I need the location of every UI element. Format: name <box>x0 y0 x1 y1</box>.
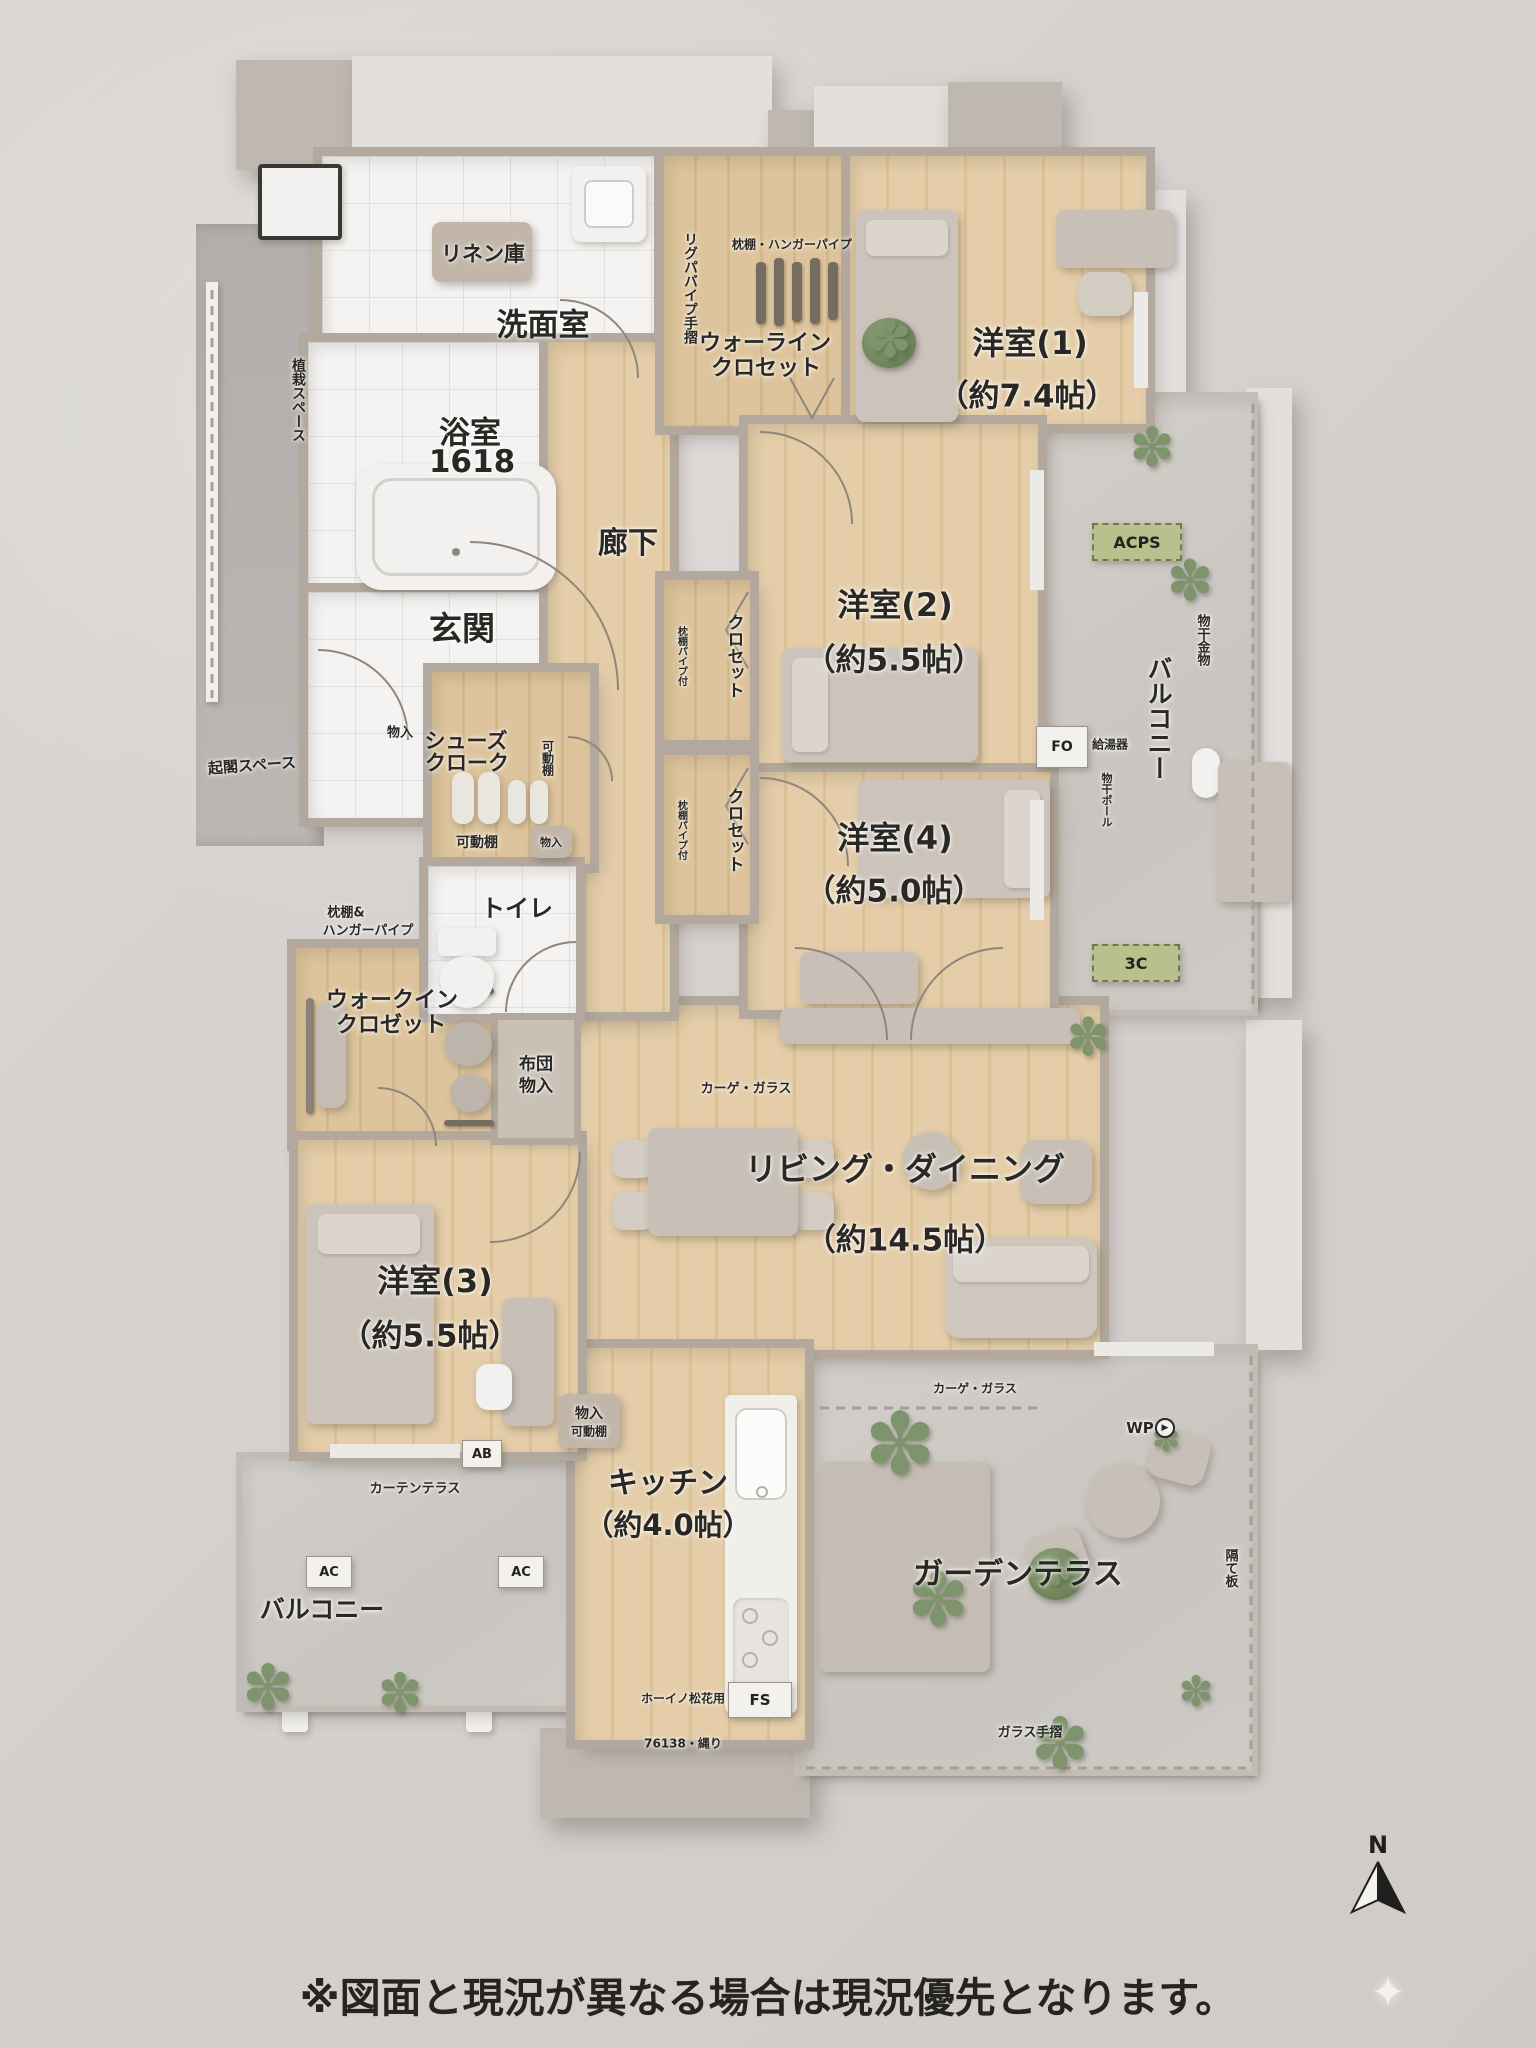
plant-icon: ✽ <box>1129 421 1174 475</box>
plant-icon: ✽ <box>868 314 912 366</box>
label-linen: リネン庫 <box>441 238 525 268</box>
plant-icon: ✽ <box>377 1667 422 1721</box>
label-closet-b-note: 枕棚パイプ付 <box>674 800 689 860</box>
label-pillar-note: リグパバイプ手摺 <box>680 232 700 344</box>
label-kitchen-area: （約4.0帖） <box>584 1502 751 1544</box>
label-kitchen-store-2: 可動棚 <box>571 1423 607 1440</box>
badge-fs: FS <box>728 1682 792 1718</box>
label-glass-rail: ガラス手摺 <box>998 1722 1063 1741</box>
badge-ab: AB <box>462 1440 502 1468</box>
plant-icon: ✽ <box>1167 554 1214 610</box>
label-wic-2: クロゼット <box>336 1007 446 1039</box>
plant-icon: ✽ <box>864 1402 936 1488</box>
label-dim-note: 76138・縄り <box>644 1735 722 1752</box>
label-bedroom2-area: （約5.5帖） <box>805 635 984 680</box>
label-glass-top: カーゲ・ガラス <box>701 1078 792 1097</box>
label-bedroom3: 洋室(3) <box>377 1256 493 1302</box>
label-living: リビング・ダイニング <box>745 1144 1065 1190</box>
label-wic-note2: ハンガーパイプ <box>323 920 414 939</box>
label-balcony-left: バルコニー <box>260 1590 385 1626</box>
badge-ac-left: AC <box>306 1556 352 1588</box>
label-bedroom2: 洋室(2) <box>837 580 953 626</box>
label-entry-note: 物入 <box>387 722 413 741</box>
plan-linework: N <box>0 0 1536 2048</box>
label-bedroom3-area: （約5.5帖） <box>341 1311 520 1356</box>
label-washroom: 洗面室 <box>497 300 590 345</box>
label-kitchen-store-1: 物入 <box>575 1403 603 1423</box>
label-hoshi: 物干金物 <box>1193 614 1212 666</box>
badge-fo: FO <box>1036 726 1088 768</box>
label-bath-size: 1618 <box>429 444 515 480</box>
plant-icon: ✽ <box>1178 1671 1213 1713</box>
label-pole: 物干ポール <box>1098 773 1114 828</box>
badge-wp: WP <box>1126 1419 1154 1437</box>
label-curtain: カーテンテラス <box>370 1478 461 1497</box>
badge-3c: 3C <box>1092 944 1180 982</box>
label-closet-a-note: 枕棚パイプ付 <box>674 626 689 686</box>
label-garden: ガーデンテラス <box>913 1549 1122 1593</box>
svg-text:N: N <box>1368 1831 1388 1859</box>
label-living-area: （約14.5帖） <box>805 1215 1006 1260</box>
label-shoes-box: 物入 <box>540 834 562 850</box>
label-corridor: 廊下 <box>598 518 658 562</box>
label-closet-b: クロセット <box>722 788 747 873</box>
label-bedroom4: 洋室(4) <box>837 813 953 859</box>
plant-icon: ✽ <box>1031 1709 1090 1779</box>
badge-ac-right: AC <box>498 1556 544 1588</box>
badge-acps: ACPS <box>1092 523 1182 561</box>
label-site-top: 植栽スペース <box>288 358 308 442</box>
plant-icon: ✽ <box>1066 1012 1110 1064</box>
label-bedroom4-area: （約5.0帖） <box>805 866 984 911</box>
label-hallcloset-note: 枕棚・ハンガーパイプ <box>732 236 852 253</box>
label-shoes-2: クローク <box>425 747 509 777</box>
label-glass-top2: カーゲ・ガラス <box>933 1380 1017 1397</box>
wp-outlet-icon: ▶ <box>1155 1418 1175 1438</box>
label-bedroom1-area: （約7.4帖） <box>938 371 1117 416</box>
label-kitchen-note: ホーイノ松花用 <box>641 1690 725 1707</box>
plant-icon: ✽ <box>242 1657 294 1719</box>
label-balcony-right: バルコニー <box>1140 656 1176 781</box>
label-kyutoki: 給湯器 <box>1092 736 1128 753</box>
label-shoes-shelf: 可動棚 <box>456 832 498 852</box>
label-hallcloset-2: クロセット <box>711 350 821 382</box>
label-closet-a: クロセット <box>722 614 747 699</box>
label-divider: 隔て板 <box>1221 1549 1240 1588</box>
label-futon-2: 物入 <box>519 1072 553 1097</box>
label-bedroom1: 洋室(1) <box>972 318 1088 364</box>
label-entrance: 玄関 <box>429 602 495 650</box>
compass-icon: N <box>1352 1831 1404 1912</box>
label-kitchen: キッチン <box>608 1458 728 1502</box>
label-shoes-side: 可動棚 <box>540 740 557 776</box>
label-wic-note1: 枕棚& <box>327 902 364 921</box>
label-toilet: トイレ <box>481 889 553 924</box>
disclaimer-text: ※図面と現況が異なる場合は現況優先となります。 <box>0 1964 1536 2024</box>
